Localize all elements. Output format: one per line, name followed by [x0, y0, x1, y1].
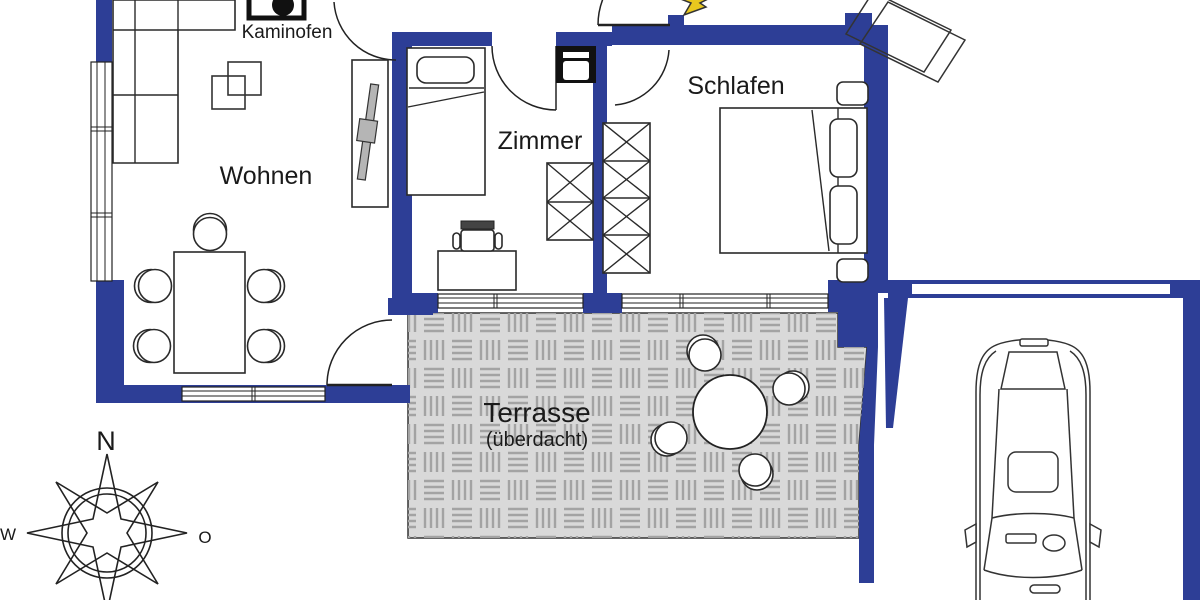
- door-living-north: [334, 2, 396, 60]
- window-west: [91, 62, 112, 281]
- door-terrace: [327, 320, 392, 385]
- compass-east-label: O: [198, 528, 211, 547]
- terrace-floor: [408, 313, 867, 538]
- living-room-label: Wohnen: [220, 162, 313, 190]
- dining-table: [174, 252, 245, 373]
- door-room: [492, 46, 556, 110]
- shelf-room: [547, 163, 593, 240]
- bedroom-label: Schlafen: [687, 72, 784, 100]
- appliance-icon: [556, 46, 596, 83]
- desk-chair: [453, 221, 502, 251]
- room-label: Zimmer: [498, 127, 583, 155]
- single-bed: [407, 48, 485, 195]
- side-tables: [212, 62, 261, 109]
- tv-board: [351, 60, 388, 207]
- desk: [438, 251, 516, 290]
- car-icon: [965, 339, 1101, 600]
- terrace-label: Terrasse: [483, 397, 590, 428]
- window-room-south: [438, 294, 583, 308]
- floor-plan-svg: Kaminofen Wohnen Zimmer Schlafen Terrass…: [0, 0, 1200, 600]
- wardrobe: [603, 123, 650, 273]
- sofa: [113, 0, 235, 163]
- window-bedroom-south: [622, 294, 828, 308]
- compass-rose-icon: [27, 454, 187, 600]
- stove-label: Kaminofen: [242, 22, 333, 43]
- compass-north-label: N: [96, 426, 116, 456]
- terrace-table: [693, 375, 767, 449]
- door-bedroom: [615, 50, 669, 105]
- entrance-arrow-icon: [678, 0, 710, 15]
- floor-plan-canvas: Kaminofen Wohnen Zimmer Schlafen Terrass…: [0, 0, 1200, 600]
- terrace-note-label: (überdacht): [486, 429, 588, 451]
- stove-icon: [249, 0, 304, 18]
- window-living-south: [182, 387, 325, 401]
- double-bed: [720, 108, 867, 253]
- compass-west-label: W: [0, 525, 16, 544]
